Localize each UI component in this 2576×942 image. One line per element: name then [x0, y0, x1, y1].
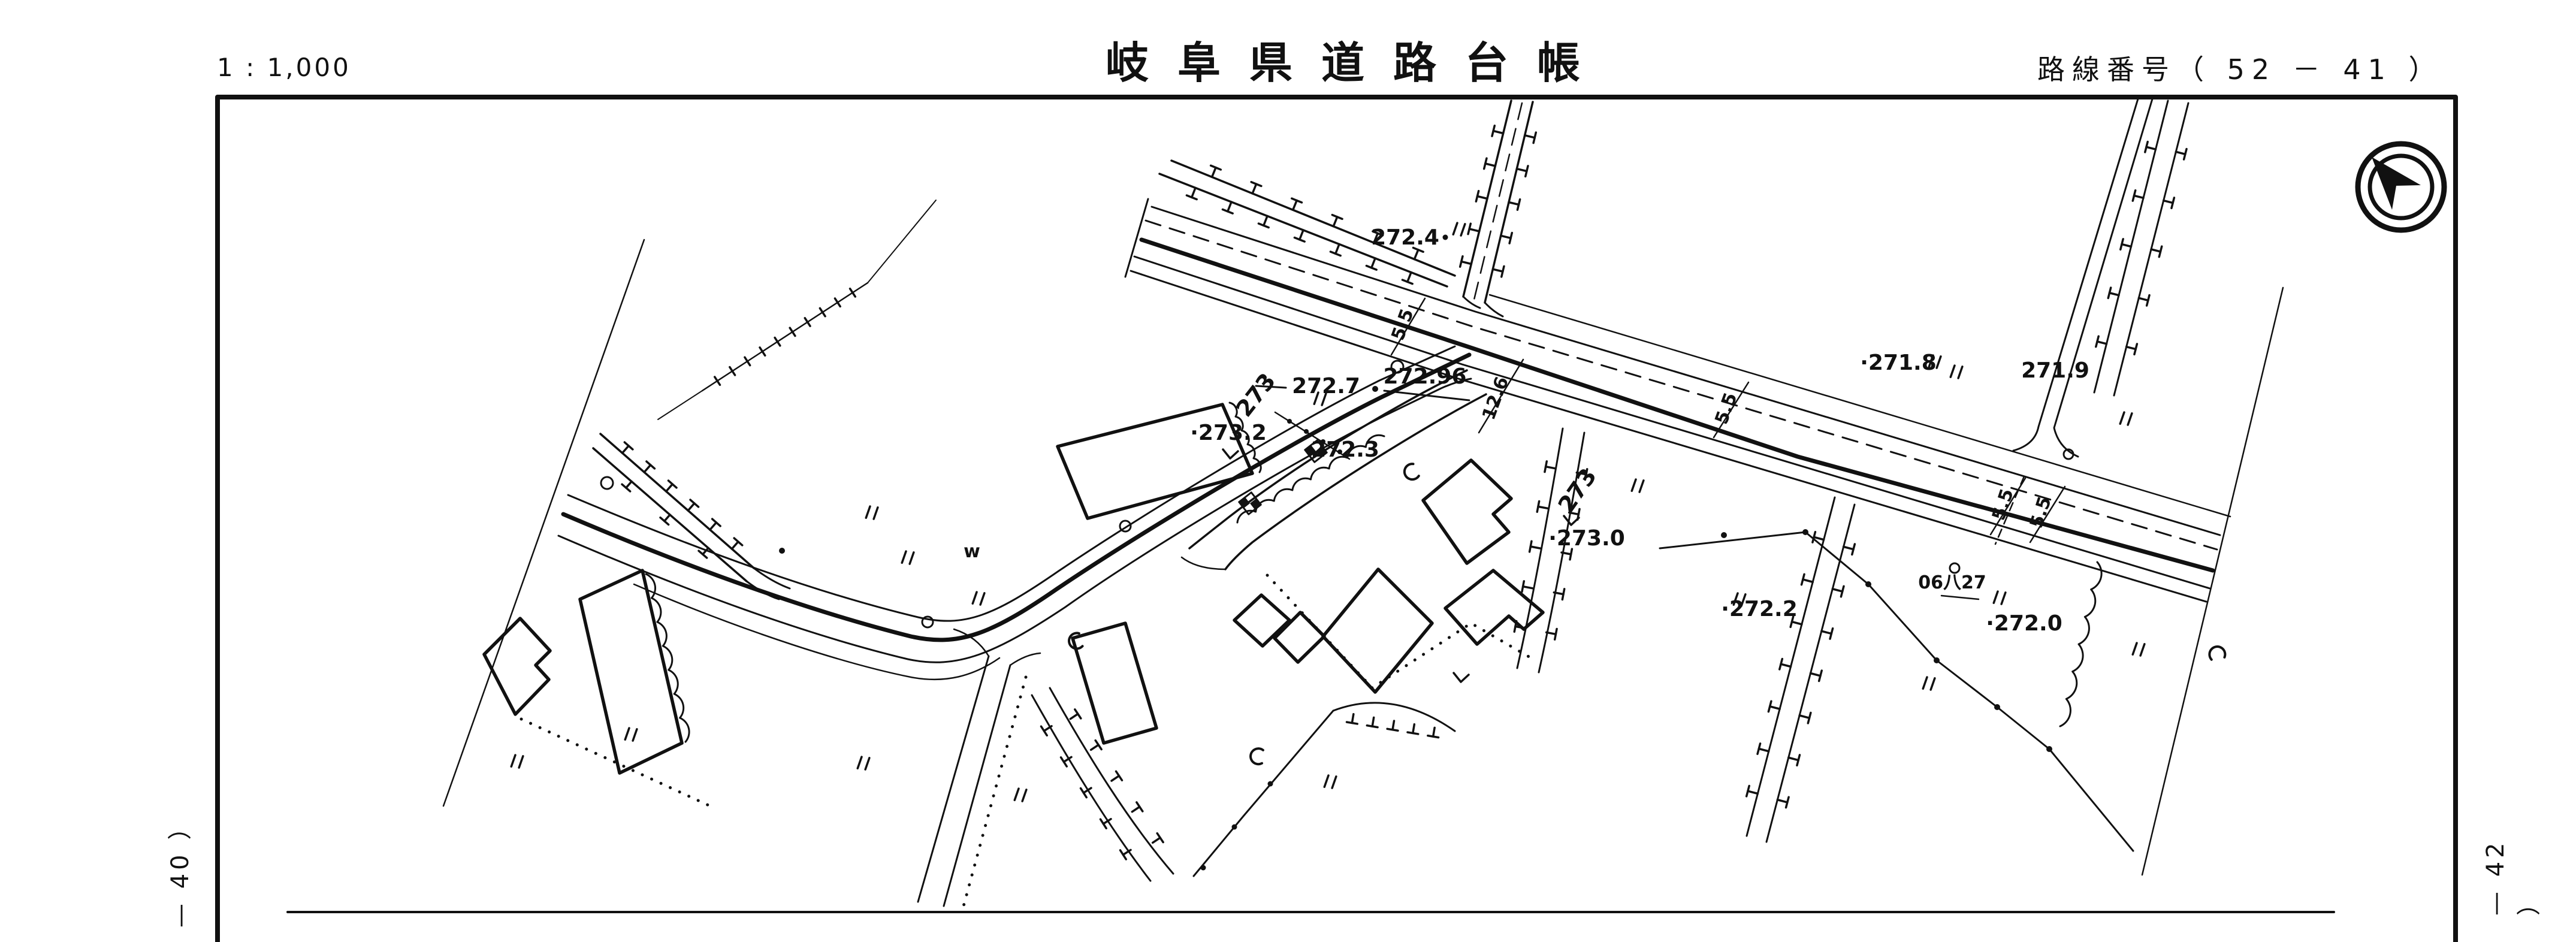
scale-label: 1 : 1,000 — [217, 53, 351, 82]
svg-text:06八27: 06八27 — [1918, 572, 1986, 593]
svg-text:272.3: 272.3 — [1311, 437, 1379, 462]
road-lane-junction — [1182, 370, 1486, 569]
svg-text:272.4: 272.4 — [1371, 225, 1439, 250]
svg-text:w: w — [964, 541, 980, 562]
building — [1323, 569, 1432, 692]
svg-text:272.96: 272.96 — [1384, 364, 1467, 389]
north-arrow-icon — [2358, 144, 2444, 230]
page-title: 岐阜県道路台帳 — [1106, 28, 1609, 90]
building — [1423, 460, 1511, 563]
building — [580, 570, 682, 773]
svg-text:271.9: 271.9 — [2021, 358, 2089, 383]
road-guardrail-left — [593, 434, 790, 599]
building — [1073, 623, 1156, 743]
building — [1234, 595, 1289, 646]
check-marks — [1223, 449, 1579, 682]
road-lane-right — [1995, 99, 2152, 544]
svg-text:12.6: 12.6 — [1478, 374, 1513, 423]
embankment-ladder-line — [658, 200, 936, 419]
building — [1445, 570, 1543, 644]
route-number-label: 路線番号（ 52 － 41 ） — [2037, 48, 2444, 87]
svg-text:272.7: 272.7 — [1292, 374, 1360, 398]
road-end-cap — [1125, 199, 1148, 277]
map-sheet: 1 : 1,000 岐阜県道路台帳 路線番号（ 52 － 41 ） — 40 ）… — [0, 0, 2576, 942]
svg-text:5.5: 5.5 — [1711, 390, 1742, 427]
svg-text:·273.2: ·273.2 — [1190, 421, 1267, 445]
building — [484, 618, 550, 714]
svg-text:·272.2: ·272.2 — [1721, 597, 1798, 621]
building — [1275, 612, 1324, 662]
dotted-boundaries — [521, 575, 1535, 906]
svg-text:5.5: 5.5 — [1388, 306, 1418, 343]
field-marks — [511, 222, 2145, 801]
road-highway — [1125, 199, 2230, 602]
adjacent-sheet-label-left: — 40 ） — [161, 813, 195, 928]
map-canvas: 272.4272.7272.96·273.2272.3·273.0·272.2·… — [0, 0, 2576, 942]
road-hatched-centerright — [1747, 497, 1855, 842]
svg-text:·273.0: ·273.0 — [1548, 526, 1625, 551]
map-labels: 272.4272.7272.96·273.2272.3·273.0·272.2·… — [964, 225, 2089, 636]
svg-text:·272.0: ·272.0 — [1986, 611, 2062, 636]
svg-text:·271.8: ·271.8 — [1860, 351, 1937, 375]
svg-text:273: 273 — [1553, 463, 1602, 517]
road-branch-bottom — [918, 629, 1455, 906]
adjacent-sheet-label-right: — 42 ） — [2482, 822, 2544, 916]
svg-text:273: 273 — [1231, 368, 1281, 422]
